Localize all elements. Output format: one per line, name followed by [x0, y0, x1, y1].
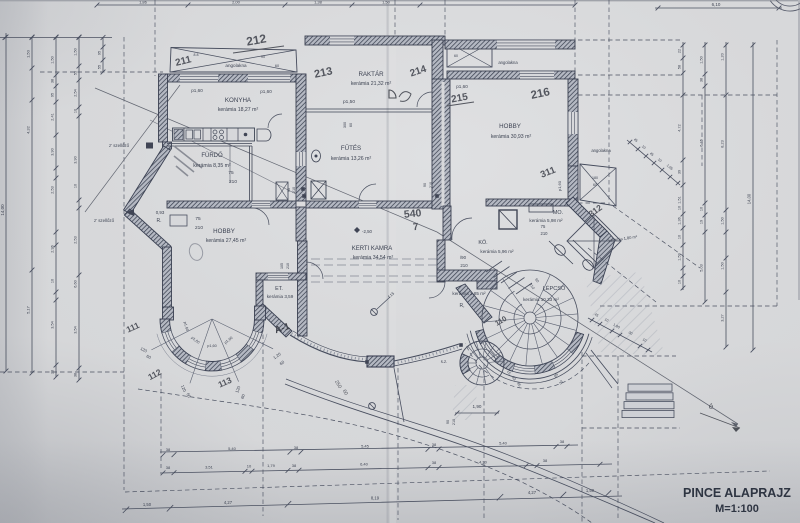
svg-text:FŰTÉS: FŰTÉS	[341, 145, 361, 152]
svg-text:6,60: 6,60	[74, 280, 78, 287]
svg-text:8 8: 8 8	[194, 53, 199, 57]
svg-text:10: 10	[51, 279, 55, 283]
svg-text:60: 60	[275, 64, 279, 68]
svg-text:3,54: 3,54	[51, 321, 55, 328]
svg-text:105: 105	[280, 263, 284, 269]
svg-text:4,72: 4,72	[678, 124, 682, 131]
svg-text:p1,60: p1,60	[456, 84, 468, 89]
svg-text:angolakna: angolakna	[591, 148, 611, 153]
svg-text:2,00: 2,00	[232, 0, 241, 5]
svg-text:LÉPCSŐ: LÉPCSŐ	[543, 285, 566, 292]
svg-text:4,27: 4,27	[224, 500, 233, 505]
svg-text:3,54: 3,54	[74, 326, 78, 333]
svg-text:R,: R,	[460, 303, 465, 309]
svg-text:3,51: 3,51	[205, 465, 214, 470]
svg-text:90: 90	[261, 55, 265, 59]
svg-text:38: 38	[560, 439, 565, 444]
svg-text:10: 10	[700, 207, 704, 211]
svg-text:38: 38	[294, 445, 299, 450]
svg-text:R.: R.	[157, 218, 162, 224]
svg-text:p1,60: p1,60	[207, 344, 217, 348]
svg-text:2,53: 2,53	[74, 236, 78, 243]
svg-text:90: 90	[287, 188, 291, 192]
svg-text:1,51: 1,51	[678, 196, 682, 203]
svg-text:kerámia 21,32 m²: kerámia 21,32 m²	[351, 81, 392, 87]
svg-text:kerámia 8,35 m²: kerámia 8,35 m²	[193, 163, 231, 169]
svg-text:angolakna: angolakna	[498, 60, 518, 65]
svg-text:4,32: 4,32	[26, 125, 31, 134]
svg-text:p1,60: p1,60	[557, 180, 562, 191]
svg-text:0,93: 0,93	[156, 210, 165, 215]
svg-text:HOBBY: HOBBY	[499, 123, 521, 130]
svg-text:KERTI KAMRA: KERTI KAMRA	[352, 246, 393, 252]
svg-text:6,15: 6,15	[700, 139, 704, 146]
svg-text:38: 38	[700, 78, 704, 82]
svg-text:38: 38	[432, 442, 437, 447]
svg-text:39: 39	[678, 170, 682, 174]
svg-text:58: 58	[678, 65, 682, 69]
svg-text:210: 210	[452, 419, 456, 425]
svg-text:4,30: 4,30	[479, 459, 488, 464]
svg-text:HOBBY: HOBBY	[213, 228, 235, 235]
svg-text:/90: /90	[460, 255, 467, 260]
svg-text:10: 10	[678, 206, 682, 210]
svg-text:5,40: 5,40	[499, 441, 508, 446]
svg-text:1,36: 1,36	[678, 217, 682, 224]
svg-text:kerámia 13,26 m²: kerámia 13,26 m²	[331, 156, 372, 162]
svg-text:6,40: 6,40	[360, 462, 369, 467]
svg-text:10: 10	[247, 464, 252, 469]
svg-text:kerámia 5,98 m²: kerámia 5,98 m²	[529, 218, 563, 223]
svg-text:kerámia 3,59: kerámia 3,59	[267, 294, 294, 299]
svg-text:1,50: 1,50	[382, 0, 391, 5]
svg-text:4,27: 4,27	[528, 490, 537, 495]
svg-text:38: 38	[292, 463, 297, 468]
svg-text:z' szellőző: z' szellőző	[109, 143, 130, 148]
svg-text:ET.: ET.	[275, 286, 283, 292]
svg-text:10: 10	[74, 109, 78, 113]
svg-text:55: 55	[74, 71, 78, 75]
svg-text:z' szellőző: z' szellőző	[94, 218, 115, 223]
svg-text:p1,60: p1,60	[260, 89, 272, 94]
svg-text:KŐ.: KŐ.	[478, 239, 487, 246]
svg-text:kerámia 18,27 m²: kerámia 18,27 m²	[218, 107, 259, 113]
svg-text:kerámia 27,45 m²: kerámia 27,45 m²	[206, 238, 247, 244]
svg-text:3,27: 3,27	[721, 314, 725, 321]
svg-text:2,53: 2,53	[51, 186, 55, 193]
svg-text:2,96: 2,96	[51, 245, 55, 252]
svg-text:38: 38	[543, 458, 548, 463]
svg-text:8,23: 8,23	[721, 140, 725, 147]
svg-text:14,00: 14,00	[747, 193, 752, 204]
svg-text:p1,50: p1,50	[343, 99, 355, 105]
svg-text:1,50: 1,50	[721, 217, 725, 224]
svg-text:14,00: 14,00	[0, 204, 5, 216]
svg-text:38: 38	[166, 465, 171, 470]
svg-text:55: 55	[98, 65, 102, 69]
svg-text:kerámia 3,85 m²: kerámia 3,85 m²	[452, 291, 486, 296]
svg-text:22: 22	[678, 49, 682, 53]
svg-text:95: 95	[51, 93, 55, 97]
svg-text:38: 38	[166, 447, 171, 452]
svg-text:é: é	[709, 402, 714, 411]
svg-text:-2,50: -2,50	[362, 229, 373, 234]
svg-text:75: 75	[195, 216, 201, 222]
svg-text:210: 210	[541, 231, 549, 236]
svg-text:2,41: 2,41	[51, 113, 55, 120]
svg-text:angolakna: angolakna	[225, 63, 247, 68]
svg-text:kerámia 30,93 m²: kerámia 30,93 m²	[491, 134, 532, 140]
svg-text:38: 38	[51, 79, 55, 83]
svg-text:RAKTÁR: RAKTÁR	[358, 71, 384, 78]
svg-text:38: 38	[74, 373, 78, 377]
svg-text:210: 210	[195, 225, 203, 231]
svg-text:10: 10	[74, 184, 78, 188]
svg-text:3,90: 3,90	[51, 148, 55, 155]
svg-text:75: 75	[541, 224, 546, 229]
svg-text:210: 210	[229, 179, 237, 185]
svg-text:210: 210	[429, 182, 433, 188]
svg-text:1,50: 1,50	[721, 262, 725, 269]
svg-text:300: 300	[343, 122, 347, 128]
svg-text:5,03: 5,03	[700, 264, 704, 271]
svg-text:60: 60	[349, 123, 353, 127]
svg-text:1,50: 1,50	[700, 56, 704, 63]
svg-text:1,79: 1,79	[267, 463, 276, 468]
svg-text:75: 75	[228, 170, 234, 176]
svg-text:540: 540	[403, 207, 422, 221]
svg-text:p1,60: p1,60	[191, 88, 203, 93]
svg-text:1,90: 1,90	[473, 404, 482, 409]
svg-text:6,10: 6,10	[712, 2, 721, 7]
svg-text:KONYHA: KONYHA	[225, 97, 252, 104]
svg-text:90: 90	[446, 420, 450, 424]
svg-text:90: 90	[423, 183, 427, 187]
svg-text:8,19: 8,19	[371, 496, 380, 501]
svg-text:FÜRDŐ: FÜRDŐ	[201, 152, 223, 159]
svg-text:210: 210	[460, 263, 468, 268]
svg-text:1,38: 1,38	[314, 0, 323, 5]
svg-text:kerámia 10,33 m²: kerámia 10,33 m²	[523, 297, 559, 302]
svg-text:38: 38	[432, 460, 437, 465]
svg-text:kerámia 5,96 m²: kerámia 5,96 m²	[480, 249, 514, 254]
svg-text:5,17: 5,17	[26, 305, 31, 314]
svg-text:5,40: 5,40	[228, 446, 237, 451]
svg-text:M=1:100: M=1:100	[715, 503, 759, 515]
svg-text:210: 210	[286, 263, 290, 269]
svg-text:MO.: MO.	[553, 210, 563, 216]
svg-text:1,50: 1,50	[26, 49, 31, 58]
svg-text:60: 60	[454, 54, 458, 58]
svg-text:PINCE ALAPRAJZ: PINCE ALAPRAJZ	[683, 486, 791, 500]
svg-text:19: 19	[700, 220, 704, 224]
svg-text:1,50: 1,50	[74, 48, 78, 55]
svg-text:60: 60	[593, 183, 597, 187]
svg-text:210: 210	[292, 187, 296, 193]
svg-text:1,86: 1,86	[139, 0, 148, 5]
svg-text:1,20: 1,20	[721, 53, 725, 60]
svg-text:1,50: 1,50	[51, 56, 55, 63]
svg-text:5,45: 5,45	[361, 444, 370, 449]
svg-text:2,54: 2,54	[74, 89, 78, 96]
svg-text:3,90: 3,90	[74, 156, 78, 163]
svg-text:10: 10	[678, 280, 682, 284]
svg-text:s.z.: s.z.	[441, 359, 448, 364]
svg-text:kerámia 34,54 m²: kerámia 34,54 m²	[353, 255, 394, 261]
svg-text:10: 10	[678, 235, 682, 239]
svg-text:1,50: 1,50	[143, 502, 152, 507]
svg-text:180: 180	[592, 176, 598, 180]
svg-text:95: 95	[98, 51, 102, 55]
